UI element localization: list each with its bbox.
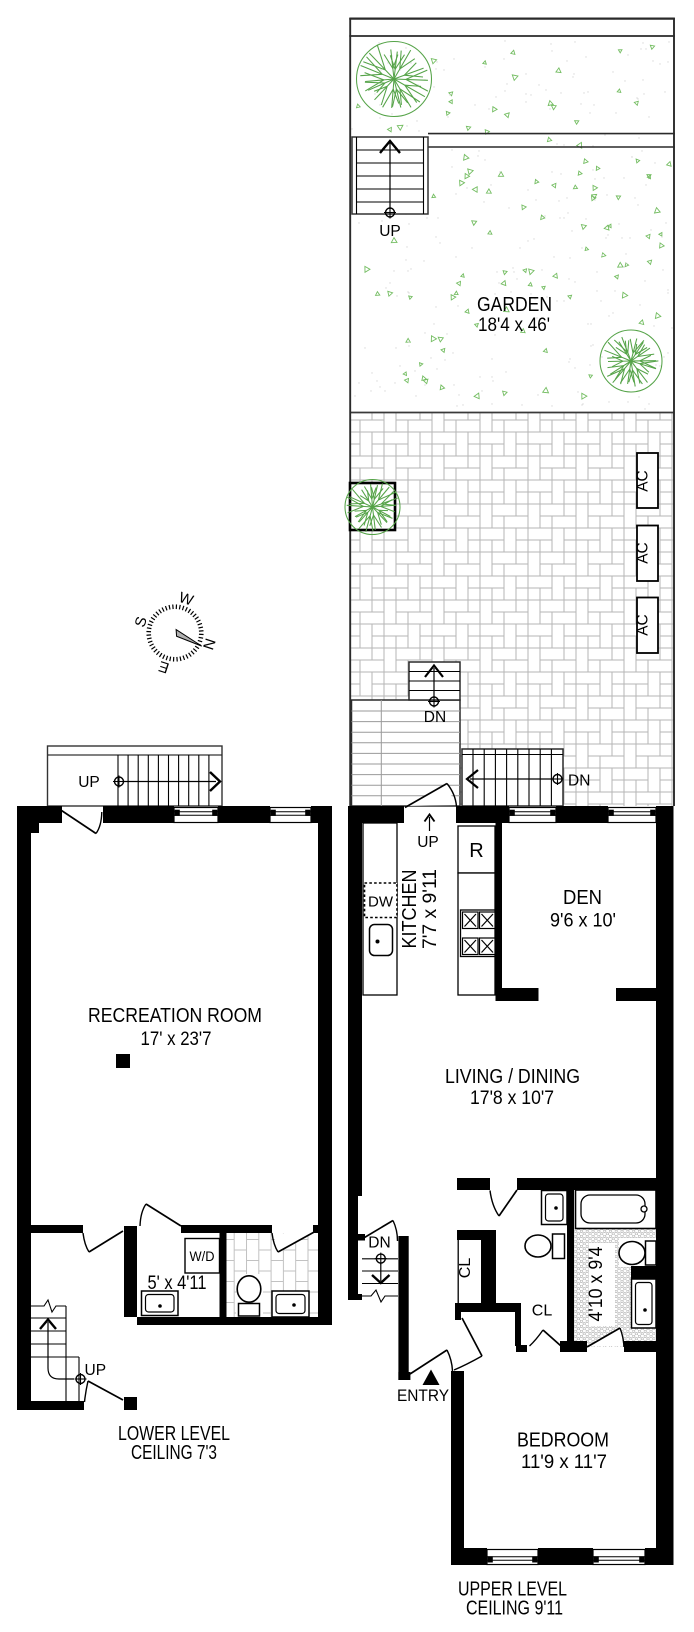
svg-text:ENTRY: ENTRY — [397, 1387, 449, 1405]
svg-text:GARDEN: GARDEN — [477, 293, 552, 316]
svg-text:DN: DN — [568, 773, 590, 790]
svg-text:18'4 x 46': 18'4 x 46' — [478, 315, 550, 336]
svg-text:UP: UP — [379, 223, 401, 240]
svg-text:UP: UP — [78, 774, 100, 791]
svg-text:UP: UP — [417, 834, 439, 851]
svg-text:KITCHEN: KITCHEN — [398, 870, 421, 949]
svg-text:CL: CL — [532, 1303, 553, 1320]
svg-text:11'9 x 11'7: 11'9 x 11'7 — [521, 1452, 607, 1473]
svg-text:17' x 23'7: 17' x 23'7 — [141, 1029, 212, 1050]
svg-text:AC: AC — [635, 614, 652, 636]
svg-text:AC: AC — [635, 542, 652, 564]
svg-text:DN: DN — [424, 709, 446, 726]
svg-text:17'8 x 10'7: 17'8 x 10'7 — [470, 1088, 554, 1109]
svg-text:CL: CL — [457, 1258, 474, 1279]
svg-text:DN: DN — [368, 1235, 390, 1252]
svg-text:AC: AC — [635, 470, 652, 492]
svg-text:RECREATION ROOM: RECREATION ROOM — [88, 1004, 262, 1027]
svg-text:9'6 x 10': 9'6 x 10' — [550, 911, 616, 932]
svg-text:CEILING 7'3: CEILING 7'3 — [131, 1441, 217, 1464]
svg-text:W/D: W/D — [190, 1249, 215, 1264]
svg-text:DEN: DEN — [563, 886, 602, 909]
svg-text:DW: DW — [368, 894, 394, 911]
svg-text:UP: UP — [85, 1362, 107, 1379]
svg-text:7'7 x 9'11: 7'7 x 9'11 — [420, 869, 441, 949]
svg-text:CEILING 9'11: CEILING 9'11 — [466, 1597, 563, 1620]
svg-text:LIVING / DINING: LIVING / DINING — [445, 1065, 580, 1088]
svg-text:R: R — [469, 840, 483, 862]
svg-text:4'10 x 9'4: 4'10 x 9'4 — [586, 1246, 607, 1321]
svg-text:BEDROOM: BEDROOM — [517, 1429, 609, 1452]
